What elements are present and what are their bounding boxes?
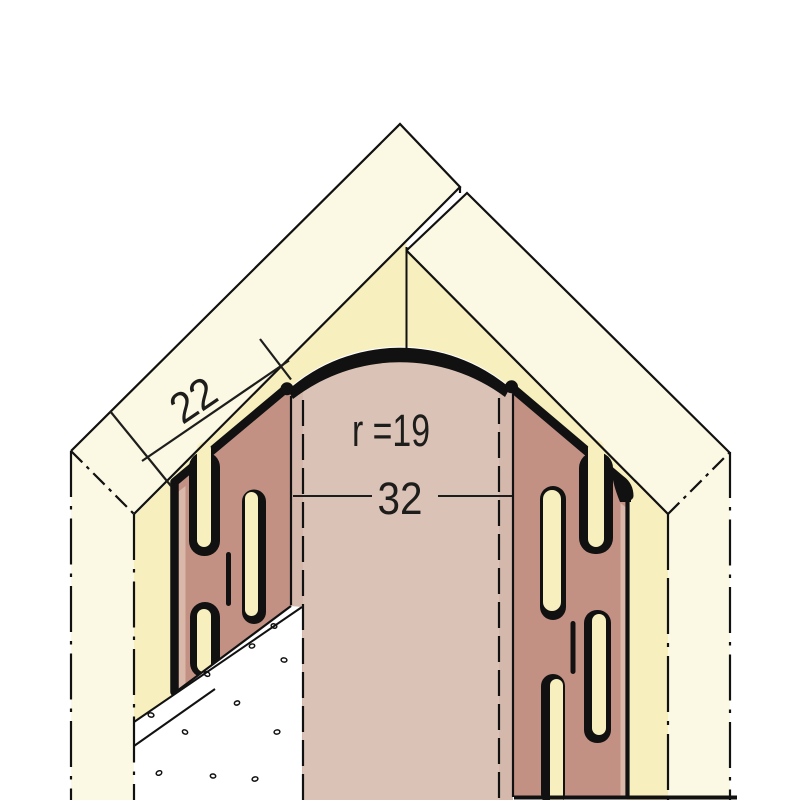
svg-text:32: 32 <box>378 473 423 524</box>
svg-text:r =19: r =19 <box>352 405 430 456</box>
